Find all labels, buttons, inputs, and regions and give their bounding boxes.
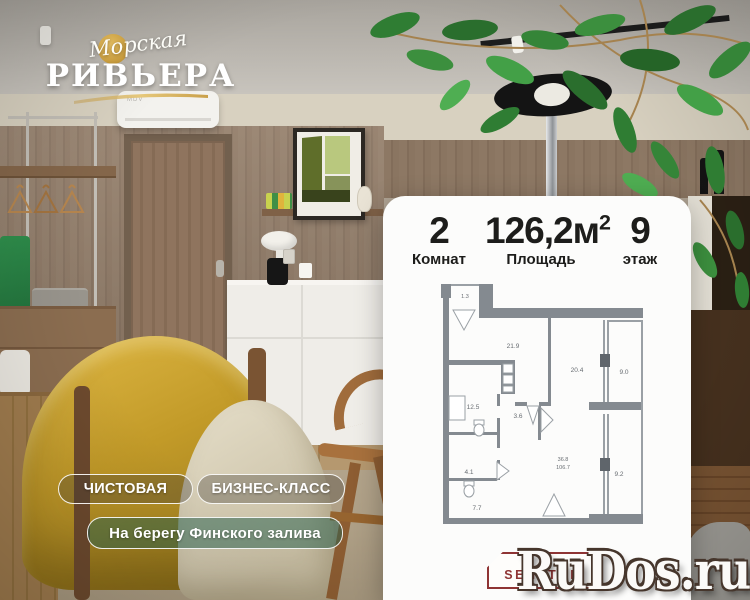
listing-image: MDV (0, 0, 750, 600)
watermark: RuDos.ru (516, 544, 750, 600)
floor-plan: 1.3 21.9 20.4 9.0 12.5 3.6 4.1 7.7 36.8 … (439, 284, 643, 526)
room-label: 21.9 (507, 343, 520, 350)
room-label: 4.1 (464, 469, 473, 476)
room-label: 20.4 (571, 367, 584, 374)
door-handle (216, 260, 224, 277)
stat-rooms: 2 Комнат (393, 212, 485, 268)
area-value: 126,2м2 (485, 212, 597, 249)
wall-outlet (283, 249, 295, 264)
area-label: Площадь (485, 251, 597, 268)
logo: Морская РИВЬЕРА (10, 8, 270, 108)
floor-label: этаж (597, 251, 683, 268)
stats-row: 2 Комнат 126,2м2 Площадь 9 этаж (383, 196, 691, 268)
room-label: 9.2 (614, 471, 623, 478)
framed-art (293, 128, 365, 220)
rooms-value: 2 (393, 212, 485, 249)
rooms-label: Комнат (393, 251, 485, 268)
stat-area: 126,2м2 Площадь (485, 212, 597, 268)
badge-location: На берегу Финского залива (87, 517, 343, 549)
hangers-icon (2, 182, 102, 222)
room-label: 3.6 (513, 413, 522, 420)
logo-main-text: РИВЬЕРА (30, 58, 252, 94)
info-card: 2 Комнат 126,2м2 Площадь 9 этаж (383, 196, 691, 600)
badge-class: БИЗНЕС-КЛАСС (197, 474, 345, 504)
cup (299, 263, 312, 278)
table-lamp (261, 231, 297, 251)
room-label: 36.8 (558, 457, 569, 463)
room-label: 12.5 (467, 404, 480, 411)
floor-value: 9 (597, 212, 683, 249)
room-label: 106.7 (556, 465, 570, 471)
room-label: 1.3 (461, 294, 469, 300)
badge-finish: ЧИСТОВАЯ (58, 474, 193, 504)
rack-shelf (0, 166, 116, 178)
room-label: 7.7 (472, 505, 481, 512)
colored-box (266, 193, 292, 209)
stat-floor: 9 этаж (597, 212, 683, 268)
room-label: 9.0 (619, 369, 628, 376)
gold-swoosh-icon (72, 92, 212, 106)
ac-vent (125, 118, 211, 121)
bed-corner (0, 350, 30, 396)
rack-bar (8, 116, 98, 119)
